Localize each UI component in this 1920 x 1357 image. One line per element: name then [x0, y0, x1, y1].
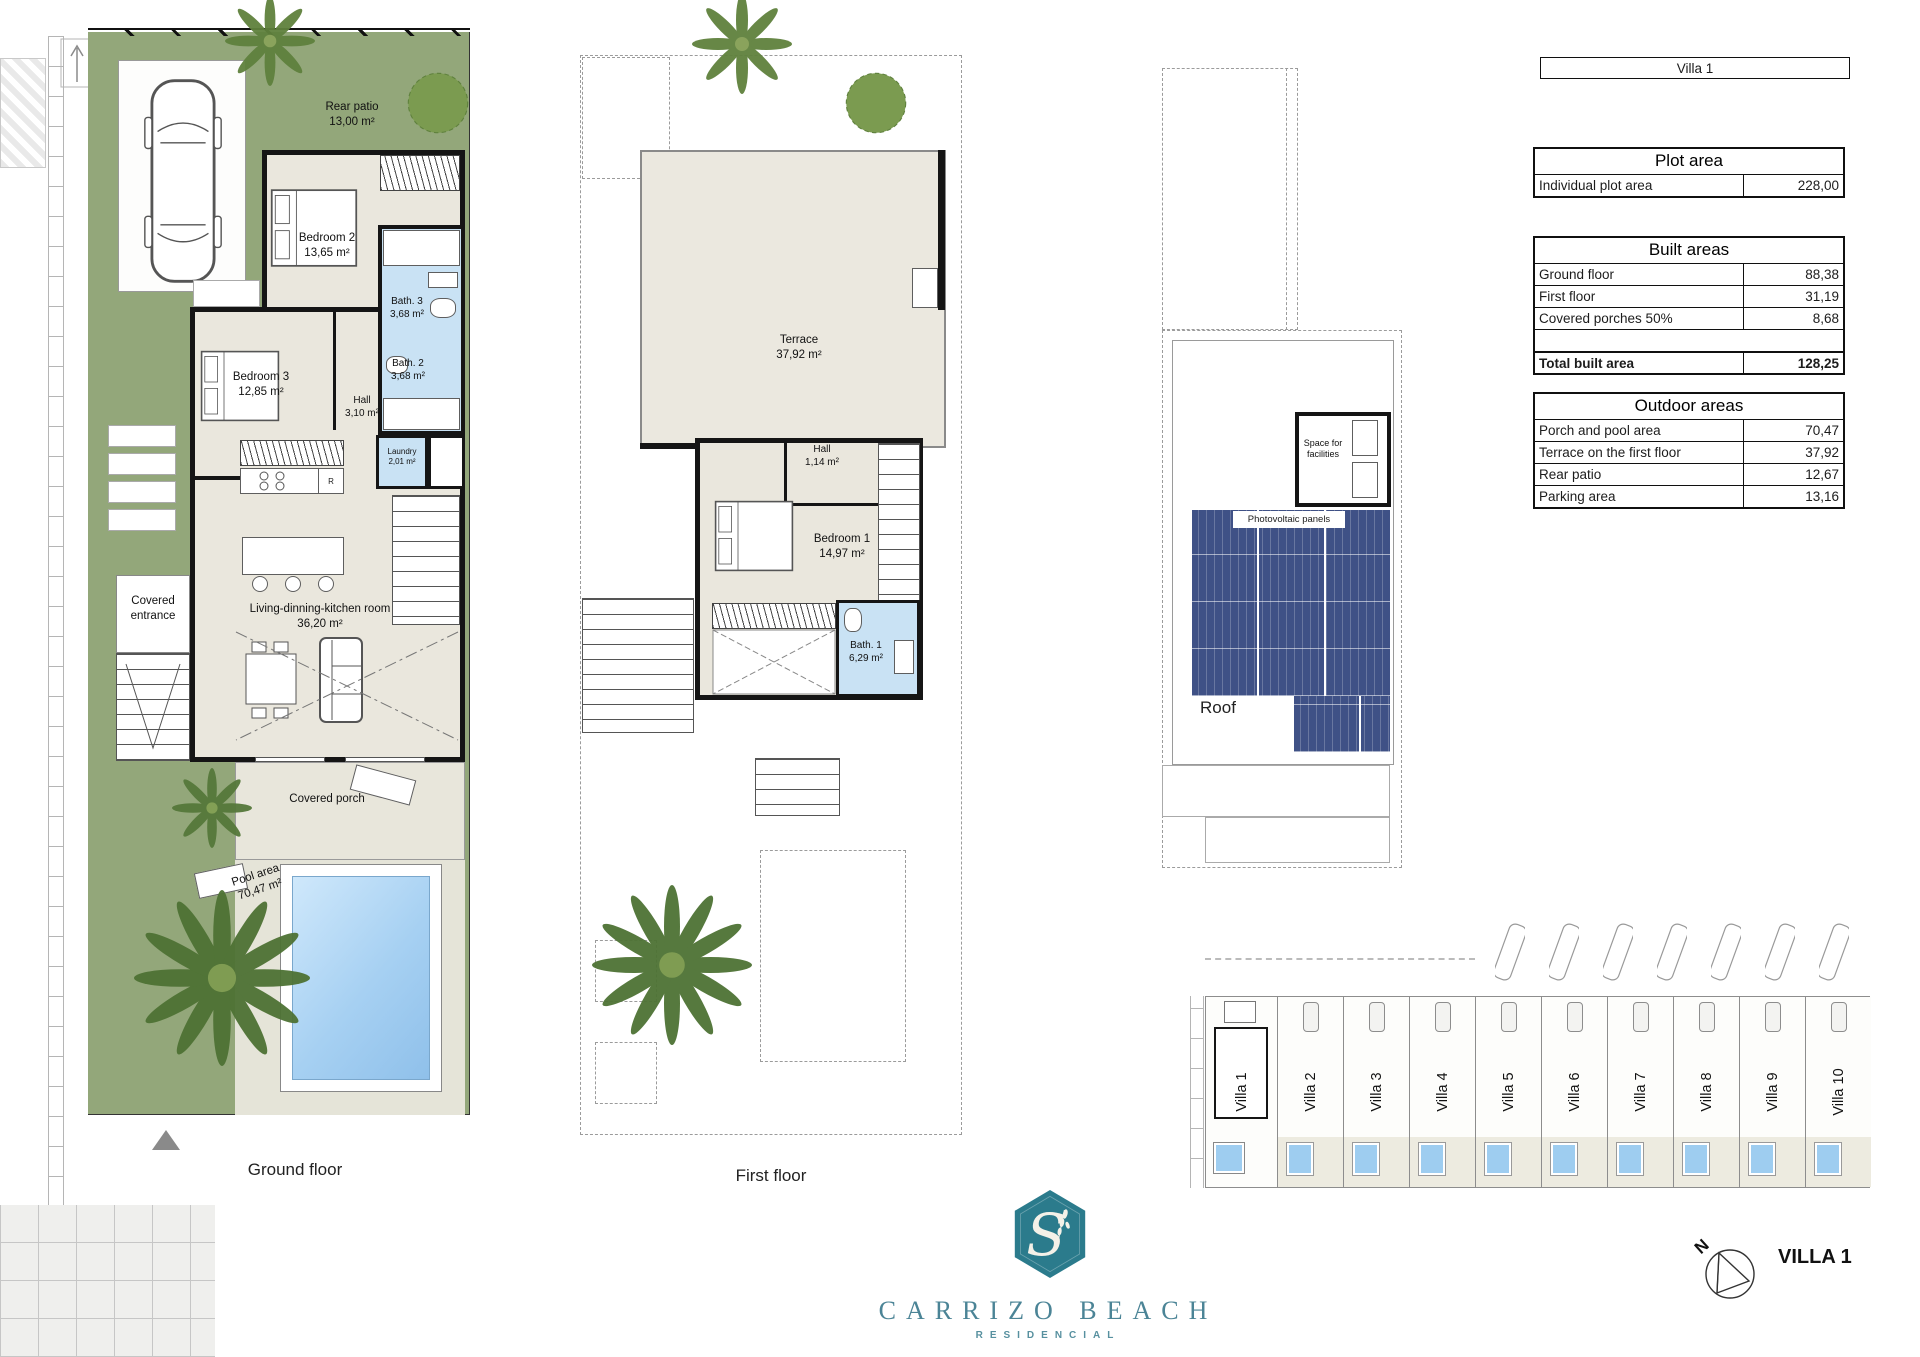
- mini-pool: [1815, 1143, 1841, 1175]
- first-floor-caption: First floor: [691, 1166, 851, 1186]
- villa-label: Villa 4: [1435, 1072, 1451, 1111]
- stool: [318, 576, 334, 592]
- exterior-steps: [755, 758, 840, 816]
- mini-pool: [1353, 1143, 1379, 1175]
- room-label-hall: Hall3,10 m²: [327, 395, 397, 420]
- mini-pool: [1287, 1143, 1313, 1175]
- terrace-area: [640, 150, 946, 448]
- stepping-slab: [108, 425, 176, 447]
- car-icon: [1501, 1002, 1517, 1032]
- table-row: Rear patio12,67: [1535, 463, 1843, 485]
- ramp-chevron: [122, 660, 184, 755]
- photovoltaic-panels: [1190, 510, 1390, 696]
- wardrobe-hatch: [712, 603, 836, 629]
- site-villa-10: Villa 10: [1805, 997, 1871, 1187]
- table-row: Covered porches 50%8,68: [1535, 307, 1843, 329]
- parked-car-icon: [1549, 922, 1579, 982]
- covered-porch-area: [235, 762, 465, 860]
- built-areas-table: Built areas Ground floor88,38 First floo…: [1533, 236, 1845, 375]
- stool: [252, 576, 268, 592]
- stool: [285, 576, 301, 592]
- hob-icon: [256, 470, 290, 492]
- room-label-bedroom2: Bedroom 213,65 m²: [267, 231, 387, 261]
- villa-label: Villa 8: [1699, 1072, 1715, 1111]
- villa-label: Villa 6: [1567, 1072, 1583, 1111]
- staircase: [878, 443, 920, 603]
- room-label-facilities: Space for facilities: [1297, 438, 1349, 460]
- closet-hatch: [380, 155, 460, 191]
- site-villa-2: Villa 2: [1277, 997, 1343, 1187]
- mini-pool: [1749, 1143, 1775, 1175]
- car-icon: [1435, 1002, 1451, 1032]
- car-icon: [140, 75, 226, 287]
- facility-unit: [1352, 462, 1378, 498]
- roof-dashed-line: [1286, 68, 1287, 330]
- brand-logo-icon: S: [1010, 1186, 1090, 1282]
- car-icon: [1633, 1002, 1649, 1032]
- mini-pool: [1683, 1143, 1709, 1175]
- room-label-covered-porch: Covered porch: [257, 792, 397, 807]
- pavement-tiles: [0, 1205, 215, 1357]
- outdoor-areas-table: Outdoor areas Porch and pool area70,47 T…: [1533, 392, 1845, 509]
- villa-label: Villa 5: [1501, 1072, 1517, 1111]
- exterior-steps: [582, 598, 694, 733]
- car-icon: [1699, 1002, 1715, 1032]
- sheet-title-box: Villa 1: [1540, 57, 1850, 79]
- room-label-bath2: Bath. 23,68 m²: [373, 358, 443, 383]
- car-icon: [1369, 1002, 1385, 1032]
- parked-car-icon: [1657, 922, 1687, 982]
- room-label-bath3: Bath. 33,68 m²: [372, 296, 442, 321]
- roof-step-outline: [1162, 765, 1390, 817]
- bush-icon: [405, 70, 471, 136]
- plan-sheet: R Rear patio13,00 m²: [0, 0, 1920, 1357]
- villa-label: Villa 9: [1765, 1072, 1781, 1111]
- table-row: First floor31,19: [1535, 285, 1843, 307]
- layout-guide-lines: [232, 628, 462, 744]
- palm-tree-icon: [592, 885, 752, 1045]
- mini-parking: [1224, 1001, 1256, 1023]
- palm-tree-icon: [692, 0, 792, 94]
- car-icon: [1831, 1002, 1847, 1032]
- facility-unit: [1352, 420, 1378, 456]
- stepping-slab: [108, 481, 176, 503]
- table-row: Terrace on the first floor37,92: [1535, 441, 1843, 463]
- stepping-slab: [108, 509, 176, 531]
- mini-pool: [1551, 1143, 1577, 1175]
- roof-caption: Roof: [1178, 698, 1258, 718]
- car-icon: [1303, 1002, 1319, 1032]
- table-row: Ground floor88,38: [1535, 263, 1843, 285]
- room-label-bedroom3: Bedroom 312,85 m²: [201, 370, 321, 400]
- site-villa-1: Villa 1: [1206, 997, 1277, 1187]
- roof-dashed-outline: [1162, 68, 1298, 330]
- table-row-blank: [1535, 329, 1843, 351]
- table-row: Parking area13,16: [1535, 485, 1843, 507]
- terrace-wall: [938, 150, 945, 310]
- stepping-slab: [108, 453, 176, 475]
- sidewalk-strip: [48, 36, 64, 1206]
- villa-label: Villa 2: [1303, 1072, 1319, 1111]
- room-label-living: Living-dinning-kitchen room36,20 m²: [230, 602, 410, 632]
- room-label-bedroom1: Bedroom 114,97 m²: [782, 532, 902, 562]
- site-plan-strip: Villa 1 Villa 2 Villa 3 Villa 4 Villa 5 …: [1205, 996, 1870, 1188]
- toilet: [844, 608, 862, 632]
- parked-car-icon: [1495, 922, 1525, 982]
- room-label-laundry: Laundry2,01 m²: [377, 447, 427, 466]
- palm-tree-icon: [172, 768, 252, 848]
- partition-wall: [784, 503, 880, 506]
- dashed-pool-footprint: [760, 850, 906, 1062]
- brand-name: CARRIZO BEACH: [848, 1296, 1248, 1326]
- site-villa-7: Villa 7: [1607, 997, 1673, 1187]
- shower: [383, 230, 460, 266]
- fridge: R: [318, 468, 344, 494]
- parked-car-icon: [1819, 922, 1849, 982]
- car-icon: [1567, 1002, 1583, 1032]
- mini-pool: [1214, 1143, 1244, 1173]
- villa-label: Villa 1: [1234, 1072, 1250, 1111]
- table-row: Individual plot area228,00: [1535, 174, 1843, 196]
- road-marking: [1205, 958, 1475, 960]
- site-villa-8: Villa 8: [1673, 997, 1739, 1187]
- dashed-footprint: [595, 1042, 657, 1104]
- villa-title: VILLA 1: [1778, 1246, 1852, 1269]
- table-row: Porch and pool area70,47: [1535, 419, 1843, 441]
- site-villa-6: Villa 6: [1541, 997, 1607, 1187]
- chimney-box: [912, 268, 938, 308]
- plot-area-table: Plot area Individual plot area228,00: [1533, 147, 1845, 198]
- room-label-covered-entrance: Covered entrance: [122, 594, 184, 624]
- palm-tree-icon: [225, 0, 315, 86]
- laundry-machines: [428, 435, 465, 489]
- mini-pool: [1617, 1143, 1643, 1175]
- villa-label: Villa 7: [1633, 1072, 1649, 1111]
- room-label-rear-patio: Rear patio13,00 m²: [292, 100, 412, 130]
- void-skylight: [712, 629, 836, 695]
- room-label-bath1: Bath. 16,29 m²: [831, 640, 901, 665]
- ground-floor-caption: Ground floor: [215, 1160, 375, 1180]
- table-title: Plot area: [1535, 149, 1843, 174]
- kitchen-island: [242, 537, 344, 575]
- bush-icon: [843, 70, 909, 136]
- site-villa-5: Villa 5: [1475, 997, 1541, 1187]
- parked-car-icon: [1603, 922, 1633, 982]
- palm-tree-icon: [134, 890, 310, 1066]
- table-title: Built areas: [1535, 238, 1843, 263]
- mini-pool: [1485, 1143, 1511, 1175]
- table-title: Outdoor areas: [1535, 394, 1843, 419]
- neighbor-hatch: [0, 58, 46, 168]
- brand-subtitle: RESIDENCIAL: [848, 1330, 1248, 1341]
- site-villa-3: Villa 3: [1343, 997, 1409, 1187]
- site-villa-4: Villa 4: [1409, 997, 1475, 1187]
- villa-label: Villa 10: [1831, 1068, 1847, 1115]
- car-icon: [1765, 1002, 1781, 1032]
- sink: [428, 272, 458, 288]
- roof-step-outline: [1205, 817, 1390, 863]
- patio-slab: [193, 280, 260, 307]
- villa-label: Villa 3: [1369, 1072, 1385, 1111]
- room-label-hall1: Hall1,14 m²: [787, 444, 857, 469]
- mini-pool: [1419, 1143, 1445, 1175]
- north-letter: N: [1691, 1235, 1713, 1257]
- swimming-pool: [292, 876, 430, 1080]
- kitchen-wardrobe-hatch: [240, 440, 344, 466]
- site-sidewalk: [1190, 996, 1204, 1188]
- parked-car-icon: [1711, 922, 1741, 982]
- table-row-total: Total built area128,25: [1535, 351, 1843, 373]
- entry-marker: [152, 1130, 180, 1150]
- photovoltaic-panels: [1292, 696, 1390, 752]
- north-arrow-icon: N: [1688, 1234, 1764, 1304]
- room-label-terrace: Terrace37,92 m²: [739, 333, 859, 363]
- panels-label: Photovoltaic panels: [1233, 511, 1345, 528]
- parked-car-icon: [1765, 922, 1795, 982]
- site-villa-9: Villa 9: [1739, 997, 1805, 1187]
